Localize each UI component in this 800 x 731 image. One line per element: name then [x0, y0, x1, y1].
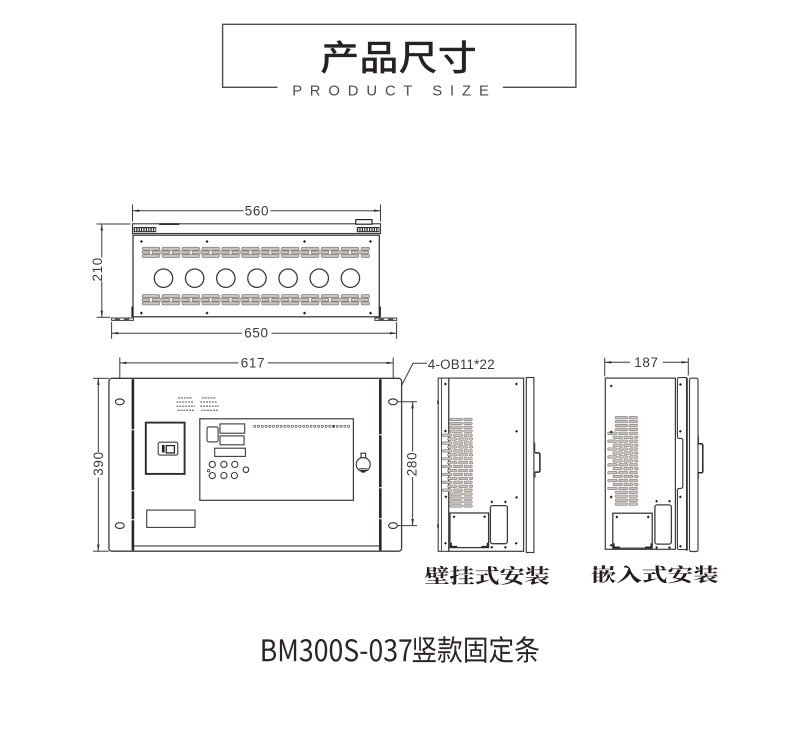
svg-text:P R O D U C T S I Z E: P R O D U C T S I Z E	[292, 83, 491, 99]
svg-text:210: 210	[90, 257, 105, 281]
svg-text:187: 187	[634, 355, 658, 370]
svg-text:4-OB11*22: 4-OB11*22	[428, 357, 495, 372]
svg-text:560: 560	[245, 203, 269, 218]
svg-text:650: 650	[244, 326, 268, 341]
svg-text:280: 280	[405, 452, 420, 476]
svg-text:617: 617	[241, 356, 265, 371]
svg-text:390: 390	[91, 451, 106, 475]
